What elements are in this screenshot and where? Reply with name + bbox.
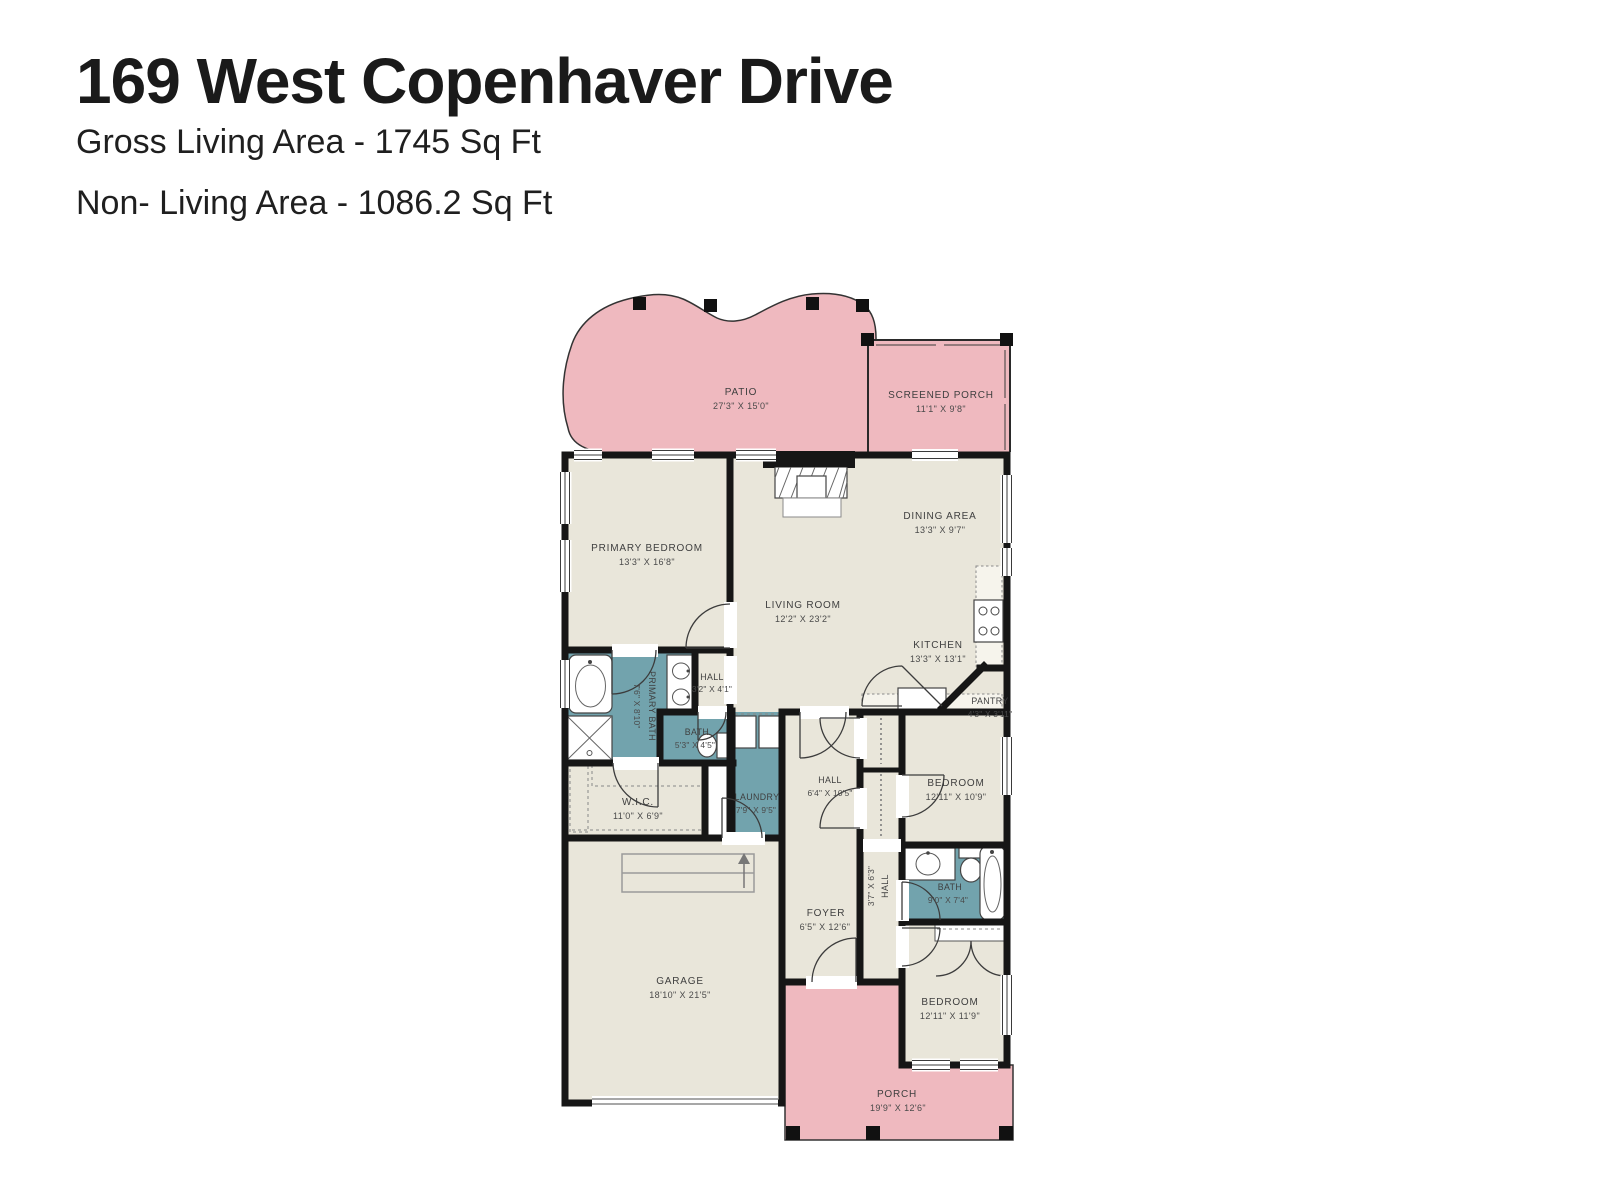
dims-laundry: 7'9" X 9'5" (736, 805, 776, 815)
room-living-dining-kitchen (730, 455, 1007, 712)
shower (567, 716, 612, 760)
fireplace-back-wall (763, 451, 855, 467)
dims-dining-area: 13'3" X 9'7" (915, 525, 966, 535)
bathtub-primary (569, 655, 612, 713)
screened-porch-post (861, 333, 874, 346)
label-wic: W.I.C. (622, 797, 654, 808)
dims-kitchen: 13'3" X 13'1" (910, 654, 966, 664)
vanity-sink-lower-bath (905, 848, 955, 880)
dims-primary-bath: 7'6" X 8'10" (632, 683, 642, 728)
room-garage (565, 838, 782, 1103)
dims-bedroom-upper: 12'11" X 10'9" (926, 792, 987, 802)
dims-foyer: 6'5" X 12'6" (800, 922, 851, 932)
page: { "header": { "title": "169 West Copenha… (0, 0, 1600, 1200)
label-pantry: PANTRY (971, 696, 1008, 706)
garage-door (592, 1096, 778, 1110)
label-laundry: LAUNDRY (735, 792, 780, 802)
label-bath-small: BATH (685, 727, 709, 737)
label-primary-bath: PRIMARY BATH (647, 671, 657, 741)
label-screened-porch: SCREENED PORCH (888, 390, 994, 401)
window (1001, 475, 1014, 543)
window (1001, 975, 1014, 1035)
dims-hall-center: 6'4" X 10'5" (807, 788, 852, 798)
dims-screened-porch: 11'1" X 9'8" (916, 404, 966, 414)
dims-bath-small: 5'3" X 4'5" (675, 740, 715, 750)
label-hall-lower: HALL (880, 874, 890, 898)
window (1001, 737, 1014, 795)
label-bedroom-lower: BEDROOM (921, 997, 978, 1008)
porch-post (866, 1126, 880, 1140)
dims-porch: 19'9" X 12'6" (870, 1103, 926, 1113)
porch-post (786, 1126, 800, 1140)
dims-bath-lower: 9'0" X 7'4" (928, 895, 968, 905)
label-hall-small: HALL (700, 672, 724, 682)
dims-bedroom-lower: 12'11" X 11'9" (920, 1011, 980, 1021)
dims-pantry: 4'3" X 3'11" (968, 709, 1012, 719)
window (736, 449, 776, 462)
patio-post (704, 299, 717, 312)
kitchen-counter-right (974, 566, 1003, 666)
label-kitchen: KITCHEN (913, 640, 963, 651)
window (559, 660, 572, 708)
label-living-room: LIVING ROOM (765, 600, 840, 611)
room-bedroom-lower (902, 922, 1007, 1065)
window (960, 1059, 998, 1072)
screened-porch-post (1000, 333, 1013, 346)
dims-hall-lower: 3'7" X 6'3" (866, 866, 876, 906)
double-vanity-sinks (667, 655, 695, 711)
window (559, 540, 572, 592)
patio-post (856, 299, 869, 312)
window (574, 449, 602, 462)
label-hall-center: HALL (818, 775, 842, 785)
porch-post (999, 1126, 1013, 1140)
label-foyer: FOYER (807, 908, 845, 919)
dims-primary-bedroom: 13'3" X 16'8" (619, 557, 675, 567)
label-bath-lower: BATH (938, 882, 962, 892)
label-porch: PORCH (877, 1089, 917, 1100)
dims-garage: 18'10" X 21'5" (649, 990, 710, 1000)
dims-wic: 11'0" X 6'9" (613, 811, 663, 821)
label-primary-bedroom: PRIMARY BEDROOM (591, 543, 703, 554)
dims-patio: 27'3" X 15'0" (713, 401, 769, 411)
patio-post (806, 297, 819, 310)
patio-post (633, 297, 646, 310)
window (1001, 548, 1014, 576)
window (652, 449, 694, 462)
dims-living-room: 12'2" X 23'2" (775, 614, 831, 624)
label-patio: PATIO (725, 387, 758, 398)
window (559, 472, 572, 524)
room-patio (563, 293, 876, 455)
label-garage: GARAGE (656, 976, 704, 987)
dims-hall-small: 3'2" X 4'1" (692, 684, 732, 694)
bathtub-lower (980, 846, 1005, 920)
room-hall-lower (860, 845, 902, 982)
label-dining-area: DINING AREA (903, 511, 976, 522)
window (912, 1059, 950, 1072)
floor-plan: PATIO 27'3" X 15'0" SCREENED PORCH 11'1"… (0, 0, 1600, 1200)
label-bedroom-upper: BEDROOM (927, 778, 984, 789)
